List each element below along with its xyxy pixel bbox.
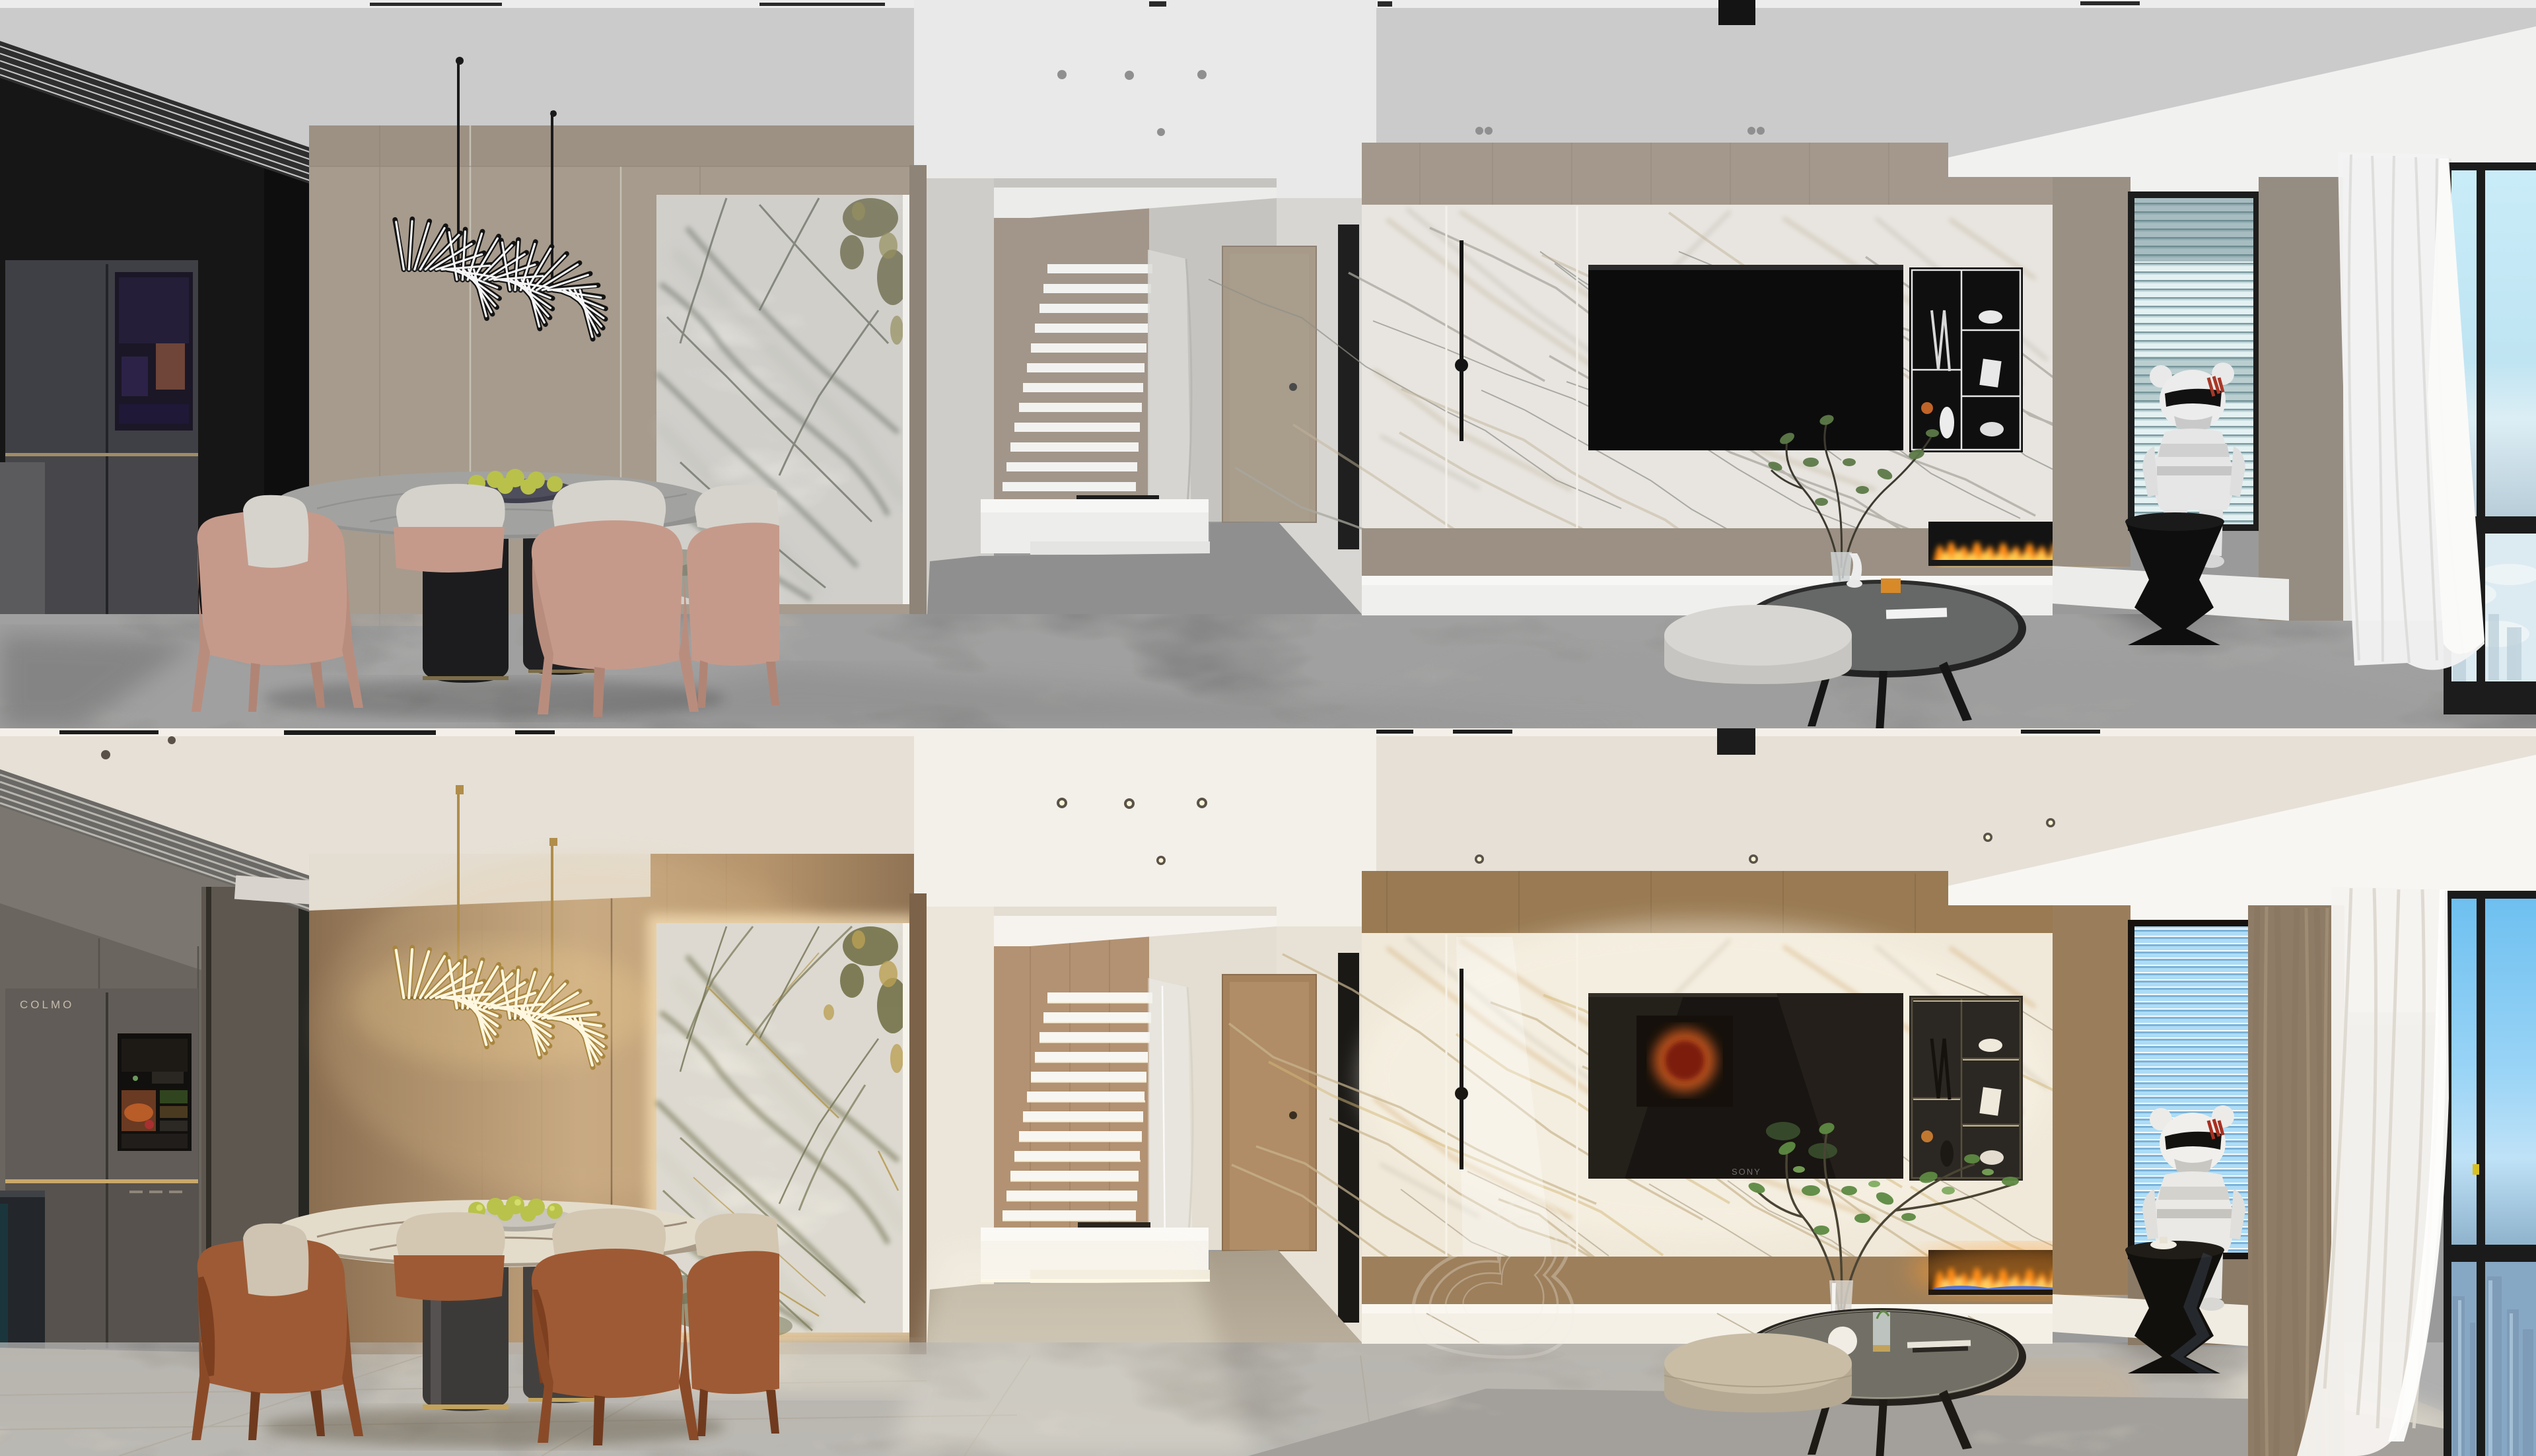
svg-text:SONY: SONY (1732, 1167, 1761, 1177)
svg-text:COLMO: COLMO (20, 998, 74, 1011)
